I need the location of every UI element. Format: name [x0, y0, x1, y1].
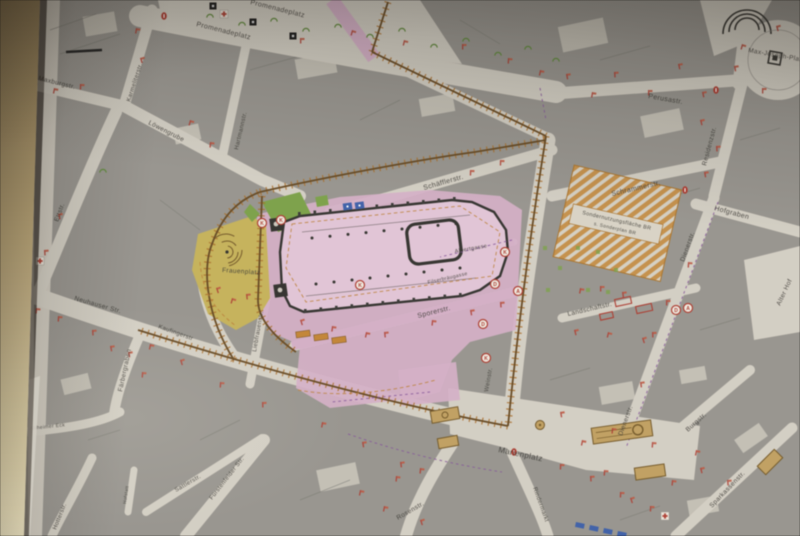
monument-square-icon: [210, 3, 217, 10]
flag-banner: [263, 402, 266, 404]
flag-banner: [93, 330, 96, 332]
church-column: [383, 229, 386, 232]
restriction-badge: D: [479, 320, 488, 329]
green-square-icon: [586, 288, 590, 292]
flag-banner: [211, 142, 214, 144]
church-column: [419, 226, 422, 229]
church-buttress: [413, 298, 416, 302]
church-column: [387, 275, 390, 278]
oval-line: [715, 88, 716, 92]
church-column: [315, 283, 318, 286]
flag-banner: [143, 372, 146, 374]
church-column: [333, 281, 336, 284]
church-column: [347, 233, 350, 236]
church-buttress: [428, 296, 431, 300]
flag-pole: [650, 506, 651, 512]
flag-banner: [301, 38, 304, 40]
flag-banner: [501, 302, 504, 304]
restriction-badge: K: [501, 248, 510, 257]
flag-banner: [605, 470, 608, 472]
badge-letter: D: [674, 308, 678, 314]
green-square-icon: [606, 290, 610, 294]
church-buttress: [391, 203, 394, 207]
flag-banner: [509, 58, 512, 60]
church-column: [311, 237, 314, 240]
restriction-badge: K: [356, 281, 365, 290]
flag-banner: [621, 492, 624, 494]
flag-banner: [613, 428, 616, 430]
church-column: [459, 267, 462, 270]
restriction-badge: A: [684, 304, 693, 313]
restriction-badge: D: [672, 306, 681, 315]
restriction-badge: D: [491, 280, 500, 289]
church-buttress: [438, 199, 441, 203]
church-buttress: [351, 304, 354, 308]
flag-pole: [666, 300, 667, 306]
oval-line: [684, 188, 685, 192]
flag-pole: [620, 492, 621, 498]
flag-pole: [470, 170, 471, 176]
church-buttress: [444, 295, 447, 299]
flag-banner: [615, 72, 618, 74]
square-dot: [212, 5, 214, 7]
flag-banner: [45, 250, 48, 252]
flag-banner: [717, 146, 720, 148]
flag-banner: [673, 480, 676, 482]
church-column: [423, 271, 426, 274]
church-buttress: [397, 299, 400, 303]
church-buttress: [459, 293, 462, 297]
info-marker-icon: [161, 12, 167, 20]
church-buttress: [329, 209, 332, 213]
flag-pole: [462, 44, 463, 50]
square-dot: [292, 35, 294, 37]
flag-banner: [247, 294, 250, 296]
church-buttress: [320, 307, 323, 311]
flag-pole: [262, 402, 263, 408]
church-buttress: [298, 212, 301, 216]
green-square-icon: [558, 266, 562, 270]
flag-banner: [591, 476, 594, 478]
church-buttress: [304, 309, 307, 313]
restriction-badge: K: [482, 354, 491, 363]
church-buttress: [407, 202, 410, 206]
church-column: [369, 277, 372, 280]
flag-banner: [81, 84, 84, 86]
oval-line: [163, 14, 164, 18]
flag-pole: [560, 464, 561, 470]
flag-pole: [300, 38, 301, 44]
church-column: [329, 235, 332, 238]
badge-letter: A: [516, 289, 520, 295]
badge-letter: K: [260, 221, 264, 227]
monument-square-icon: [250, 19, 257, 26]
flag-banner: [463, 44, 466, 46]
info-marker-icon: [682, 186, 688, 194]
flag-banner: [37, 308, 40, 310]
badge-letter: K: [503, 250, 507, 256]
green-square-icon: [596, 250, 600, 254]
info-marker-icon: [713, 86, 719, 94]
flag-banner: [667, 300, 670, 302]
green-square-icon: [614, 268, 618, 272]
church-column: [351, 279, 354, 282]
green-square-icon: [546, 288, 550, 292]
flag-banner: [59, 316, 62, 318]
city-map-svg: Sondernutzungsfläche BR s. Sonderplan BR: [0, 0, 800, 536]
church-column: [441, 269, 444, 272]
flag-banner: [421, 468, 424, 470]
flag-pole: [500, 160, 501, 166]
church-buttress: [335, 306, 338, 310]
church-buttress: [382, 301, 385, 305]
church-buttress: [314, 211, 317, 215]
church-buttress: [422, 200, 425, 204]
restriction-badge: A: [514, 287, 523, 296]
church-buttress: [366, 303, 369, 307]
flag-banner: [653, 332, 656, 334]
church-column: [405, 273, 408, 276]
flag-banner: [221, 382, 224, 384]
flag-banner: [501, 160, 504, 162]
church-column: [401, 228, 404, 231]
redcross-icon: [661, 512, 669, 520]
badge-letter: K: [279, 218, 283, 224]
redcross-icon: [220, 10, 228, 18]
restriction-badge: K: [277, 216, 286, 225]
flag-banner: [601, 286, 604, 288]
restriction-badge: K: [258, 219, 267, 228]
square-dot: [252, 21, 254, 23]
flag-pole: [80, 84, 81, 90]
badge-letter: K: [484, 356, 488, 362]
flag-banner: [433, 320, 436, 322]
flag-banner: [649, 90, 652, 92]
church-buttress: [376, 205, 379, 209]
badge-letter: K: [358, 283, 362, 289]
map-photo: Sondernutzungsfläche BR s. Sonderplan BR: [0, 0, 800, 536]
flag-banner: [561, 464, 564, 466]
flag-banner: [763, 88, 766, 90]
church-column: [455, 222, 458, 225]
flag-pole: [652, 332, 653, 338]
flag-banner: [653, 442, 656, 444]
flag-banner: [651, 506, 654, 508]
flag-pole: [600, 286, 601, 292]
flag-pole: [762, 88, 763, 94]
badge-letter: D: [481, 322, 485, 328]
green-square-icon: [543, 246, 547, 250]
green-square-icon: [576, 246, 580, 250]
flag-banner: [397, 476, 400, 478]
monument-square-icon: [290, 33, 297, 40]
flag-banner: [689, 262, 692, 264]
badge-letter: A: [686, 306, 690, 312]
flag-banner: [385, 332, 388, 334]
badge-letter: D: [493, 282, 497, 288]
church-buttress: [453, 197, 456, 201]
church-column: [365, 231, 368, 234]
church-column: [437, 224, 440, 227]
flag-banner: [471, 170, 474, 172]
